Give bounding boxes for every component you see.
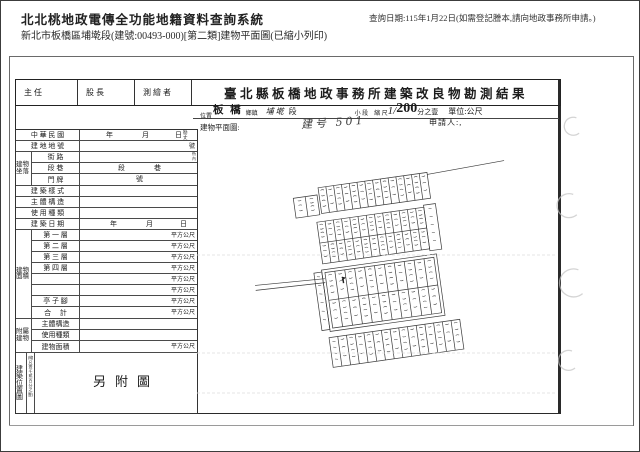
plan-label-top: 位置: [200, 114, 212, 120]
plan-figure-label: 位置 建物平面圖:: [200, 113, 240, 134]
row-annex-area: 建物面積 平方公尺: [32, 341, 197, 352]
district-unit-label: 鄉鎮: [246, 108, 258, 117]
row-usage-type: 使 用 種 類: [16, 208, 197, 219]
row-floor-3: 第 三 層平方公尺: [32, 252, 197, 263]
lane-label: 段 巷: [32, 163, 80, 173]
page-top-edge: [9, 56, 633, 57]
month-label: 月: [142, 130, 149, 140]
sqm-unit: 平方公尺: [171, 275, 195, 285]
floor-area-value: 平方公尺: [80, 230, 197, 240]
survey-data-table: 中 華 民 國 年 月 日 勘丈 建 地 地 號 號 建物坐落 街 路 衖內: [15, 129, 198, 414]
structure-label: 主 體 構 造: [16, 197, 80, 207]
row-annex-structure: 主體構造: [32, 319, 197, 330]
floor-area-group: 建物面積 第 一 層平方公尺第 二 層平方公尺第 三 層平方公尺第 四 層平方公…: [16, 230, 197, 319]
row-building-style: 建 築 樣 式: [16, 186, 197, 197]
section-name: 埔 墘: [266, 106, 284, 117]
sqm-unit: 平方公尺: [171, 242, 195, 252]
floor-area-value: 平方公尺: [80, 285, 197, 295]
floor-area-value: 平方公尺: [80, 274, 197, 284]
floor-label: 第 三 層: [32, 252, 80, 262]
door-label: 門 牌: [32, 174, 80, 185]
lot-label: 建 地 地 號: [16, 141, 80, 151]
lane-seg-unit: 段: [118, 163, 125, 173]
survey-micro-label: 勘丈: [183, 130, 189, 140]
sqm-unit: 平方公尺: [171, 308, 195, 318]
row-annex-usage: 使用種類: [32, 330, 197, 341]
floor-label: 第 一 層: [32, 230, 80, 240]
sqm-unit: 平方公尺: [171, 264, 195, 274]
street-value: 衖內: [80, 152, 197, 162]
row-street: 街 路 衖內: [32, 152, 197, 163]
annex-group-label: 附屬建物: [16, 319, 32, 352]
roc-value: 年 月 日 勘丈: [80, 130, 197, 140]
annex-structure-label: 主體構造: [32, 319, 80, 329]
lane-value: 段 巷: [80, 163, 197, 173]
area-group-label: 建物面積: [16, 230, 32, 318]
scale-prefix: 1/: [388, 105, 397, 117]
unit-label: 單位:公尺: [448, 106, 482, 117]
sqm-unit: 平方公尺: [171, 253, 195, 263]
scale-value: 200: [396, 101, 417, 117]
plan-label-main: 建物平面圖:: [200, 123, 240, 132]
floor-label: 第 四 層: [32, 263, 80, 273]
address-group: 建物坐落 街 路 衖內 段 巷 段 巷 門 牌: [16, 152, 197, 186]
row-floor-5: 平方公尺: [32, 274, 197, 285]
floor-area-value: 平方公尺: [80, 241, 197, 251]
row-floor-6: 平方公尺: [32, 285, 197, 296]
attached-figure-text: 另附圖: [93, 371, 159, 390]
page-left-edge: [9, 56, 10, 426]
usage-label: 使 用 種 類: [16, 208, 80, 218]
position-group-label: 建築位置圖: [16, 353, 27, 413]
row-floor-7: 亭 子 腳平方公尺: [32, 296, 197, 307]
scale-label: 縮 尺: [374, 108, 388, 117]
screenshot-root: 北北桃地政電傳全功能地籍資料查詢系統 查詢日期:115年1月22日(如需登記謄本…: [0, 0, 640, 452]
location-underline: [193, 118, 559, 119]
roc-label: 中 華 民 國: [16, 130, 80, 140]
scale-suffix: 分之壹: [417, 107, 438, 117]
lane-alley-unit: 巷: [154, 163, 161, 173]
day-label: 日: [180, 219, 187, 229]
row-lane: 段 巷 段 巷: [32, 163, 197, 174]
applicant-label: 申請人:,: [429, 117, 462, 128]
row-main-structure: 主 體 構 造: [16, 197, 197, 208]
section-unit-label: 段: [289, 106, 297, 117]
door-unit: 號: [136, 174, 143, 184]
floor-label: 亭 子 腳: [32, 296, 80, 306]
year-label: 年: [110, 219, 117, 229]
floor-rows: 第 一 層平方公尺第 二 層平方公尺第 三 層平方公尺第 四 層平方公尺平方公尺…: [32, 230, 197, 318]
query-date-note: 查詢日期:115年1月22日(如需登記謄本,請向地政事務所申請。): [369, 12, 596, 24]
month-label: 月: [146, 219, 153, 229]
usage-value: [80, 208, 197, 218]
style-value: [80, 186, 197, 196]
sqm-unit: 平方公尺: [171, 342, 195, 352]
annex-area-label: 建物面積: [32, 341, 80, 352]
street-label: 街 路: [32, 152, 80, 162]
approver-chief: 主 任: [16, 80, 78, 105]
row-floor-8: 合 計平方公尺: [32, 307, 197, 318]
attached-figure-cell: 另附圖: [35, 353, 197, 413]
builddate-label: 建 築 日 期: [16, 219, 80, 229]
builddate-value: 年 月 日: [80, 219, 197, 229]
micro-text-illegible: 衖內: [191, 152, 197, 161]
style-label: 建 築 樣 式: [16, 186, 80, 196]
sqm-unit: 平方公尺: [171, 286, 195, 296]
row-roc-date: 中 華 民 國 年 月 日 勘丈: [16, 130, 197, 141]
lot-value: 號: [80, 141, 197, 151]
sqm-unit: 平方公尺: [171, 231, 195, 241]
row-floor-1: 第 一 層平方公尺: [32, 230, 197, 241]
floor-area-value: 平方公尺: [80, 307, 197, 318]
row-floor-2: 第 二 層平方公尺: [32, 241, 197, 252]
floor-area-value: 平方公尺: [80, 263, 197, 273]
document-subtitle: 新北市板橋區埔墘段(建號:00493-000)[第二類]建物平面圖(已縮小列印): [21, 27, 327, 42]
page-bottom-edge: [9, 425, 633, 426]
annex-group: 附屬建物 主體構造 使用種類 建物面積 平方公尺: [16, 319, 197, 353]
sqm-unit: 平方公尺: [171, 297, 195, 307]
page-right-edge: [633, 56, 634, 426]
floor-area-value: 平方公尺: [80, 296, 197, 306]
approver-section-head: 股 長: [78, 80, 135, 105]
location-scale-row: 板 橋 鄉鎮 埔 墘 段 小 段 縮 尺 1/ 200 分之壹 單位:公尺: [197, 102, 561, 117]
row-door-plate: 門 牌 號: [32, 174, 197, 185]
floor-label: 合 計: [32, 307, 80, 318]
floor-label: 第 二 層: [32, 241, 80, 251]
app-title: 北北桃地政電傳全功能地籍資料查詢系統: [21, 9, 264, 28]
structure-value: [80, 197, 197, 207]
floor-label: [32, 285, 80, 295]
row-floor-4: 第 四 層平方公尺: [32, 263, 197, 274]
floor-label: [32, 274, 80, 284]
position-scale-note: (縮尺壹千貳百分之壹): [27, 353, 35, 413]
address-group-label: 建物坐落: [16, 152, 32, 185]
annex-usage-label: 使用種類: [32, 330, 80, 340]
form-right-thick-edge: [558, 79, 560, 414]
year-label: 年: [106, 130, 113, 140]
approver-surveyor: 測 繪 者: [135, 80, 192, 105]
row-build-date: 建 築 日 期 年 月 日: [16, 219, 197, 230]
door-value: 號: [80, 174, 197, 185]
row-lot-number: 建 地 地 號 號: [16, 141, 197, 152]
floor-area-value: 平方公尺: [80, 252, 197, 262]
position-map-group: 建築位置圖 (縮尺壹千貳百分之壹) 另附圖: [16, 353, 197, 413]
day-label: 日: [175, 130, 182, 140]
